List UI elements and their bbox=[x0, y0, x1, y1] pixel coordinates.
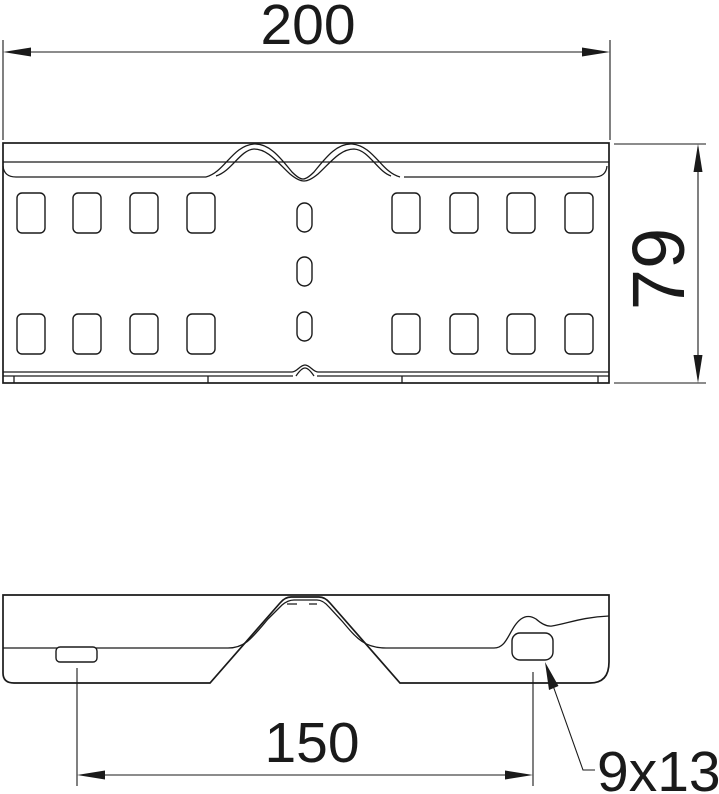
front-view bbox=[3, 143, 609, 383]
oval-slot bbox=[297, 257, 312, 286]
height-dimension-label: 79 bbox=[617, 228, 700, 310]
leader-line bbox=[551, 680, 595, 770]
slot-hole bbox=[17, 314, 45, 354]
oval-slot bbox=[297, 312, 312, 341]
plan-view bbox=[3, 595, 609, 683]
spacing-dimension-label: 150 bbox=[264, 711, 359, 775]
arrowhead-right bbox=[505, 771, 533, 780]
hem-left bbox=[3, 166, 206, 177]
drawing-canvas: 200 79 150 9x13 bbox=[0, 0, 719, 794]
oval-slot bbox=[297, 203, 312, 232]
slot-hole bbox=[565, 314, 593, 354]
slot-hole bbox=[565, 193, 593, 233]
hole-size-label: 9x13 bbox=[597, 740, 719, 794]
center-oval-slots bbox=[297, 203, 312, 341]
hole-size-callout: 9x13 bbox=[545, 662, 719, 794]
oblong-hole-9x13 bbox=[512, 633, 553, 660]
bottom-hem-ticks bbox=[14, 376, 598, 383]
slot-hole bbox=[130, 193, 158, 233]
arrowhead-bottom bbox=[694, 355, 703, 383]
dimension-length: 200 bbox=[3, 0, 610, 140]
slot-hole bbox=[392, 193, 420, 233]
slot-hole bbox=[450, 193, 478, 233]
arrowhead-left bbox=[77, 771, 105, 780]
slot-hole bbox=[507, 314, 535, 354]
hem-right bbox=[404, 166, 607, 177]
slot-hole bbox=[73, 314, 101, 354]
technical-drawing: 200 79 150 9x13 bbox=[0, 0, 719, 794]
slot-hole bbox=[73, 193, 101, 233]
dimension-height: 79 bbox=[614, 144, 706, 383]
dimension-spacing: 150 bbox=[77, 668, 533, 786]
wave-inner bbox=[216, 149, 391, 181]
slot-hole bbox=[187, 193, 215, 233]
slot-hole bbox=[507, 193, 535, 233]
slot-hole bbox=[450, 314, 478, 354]
arrowhead-left bbox=[3, 48, 31, 57]
slot-hole bbox=[392, 314, 420, 354]
arrowhead-top bbox=[694, 144, 703, 172]
small-slot bbox=[56, 647, 97, 662]
slot-hole bbox=[130, 314, 158, 354]
leader-arrowhead bbox=[545, 662, 559, 690]
arrowhead-right bbox=[582, 48, 610, 57]
slot-hole bbox=[187, 314, 215, 354]
length-dimension-label: 200 bbox=[260, 0, 355, 57]
slot-hole bbox=[17, 193, 45, 233]
